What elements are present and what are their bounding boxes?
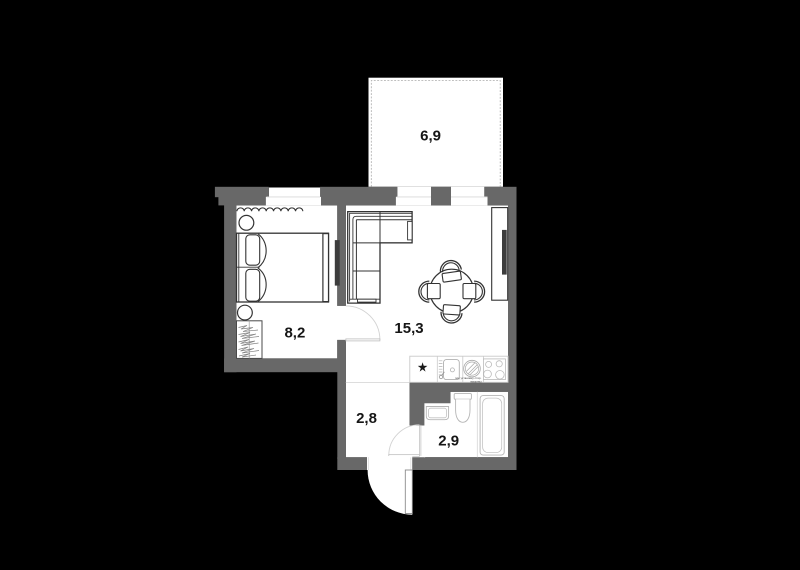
svg-text:8,2: 8,2 (284, 325, 305, 342)
svg-text:машины: машины (470, 380, 481, 383)
svg-text:6,9: 6,9 (420, 128, 441, 145)
svg-text:2,9: 2,9 (438, 432, 459, 449)
svg-text:2,8: 2,8 (356, 410, 377, 427)
svg-text:15,3: 15,3 (394, 320, 423, 337)
